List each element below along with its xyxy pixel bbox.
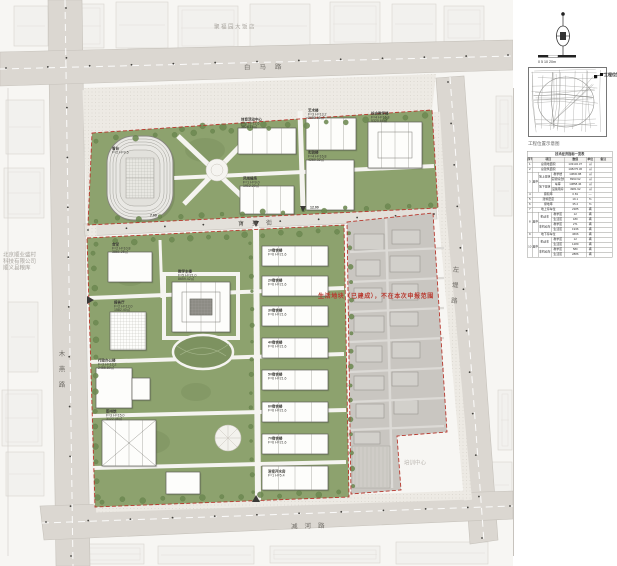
building-annotation: 行政办公楼F=3 H=13.22455.80㎡	[98, 359, 116, 370]
annotation-line: F=6 H=21.6	[268, 253, 286, 257]
context-label-hotel: 聚福园大饭店	[214, 24, 256, 31]
building-annotation: 1#宿舍楼F=6 H=21.6	[268, 249, 286, 257]
excluded-parcel-note: 生活地块（已建成），不在本次申报范围	[318, 291, 434, 300]
road-label-muyan-rd: 木燕路	[55, 350, 65, 397]
building-annotation: 图书馆F=3 H=15.03122.46㎡	[106, 410, 124, 421]
road-label-south-rd: 减河路	[291, 519, 332, 530]
building	[306, 160, 354, 210]
annotation-line: 1912.20㎡	[243, 185, 260, 189]
annotation-line: F=6 H=21.6	[268, 409, 286, 413]
existing-building	[392, 230, 420, 244]
existing-building	[354, 316, 384, 332]
building-annotation: 7#宿舍楼F=6 H=21.6	[268, 437, 286, 445]
existing-building	[392, 342, 420, 358]
table-cell: 实验综合楼	[551, 177, 564, 182]
legend-panel: 0 5 10 20m	[513, 0, 617, 566]
building-annotation: 6#宿舍楼F=6 H=21.6	[268, 405, 286, 413]
building	[96, 368, 132, 408]
building	[108, 252, 152, 282]
location-map-caption: 工程位置示意图	[528, 140, 560, 147]
north-arrow-compass-icon	[550, 10, 576, 58]
building-annotation: 食堂F=2 H=10.83861.25㎡	[112, 243, 130, 254]
table-cell: 机动车	[538, 212, 551, 222]
location-marker-icon	[594, 75, 597, 78]
building-annotation: 风雨操场F=1 H=9.01912.20㎡	[243, 177, 260, 188]
scale-bar: 0 5 10 20m	[538, 55, 578, 67]
annotation-line: 12.00	[310, 206, 319, 210]
sports-plaza-circle	[206, 159, 228, 181]
existing-building	[356, 346, 382, 362]
building-annotation: 体育活动中心F=2 H=12.63826.18㎡	[241, 118, 262, 129]
table-cell	[594, 252, 612, 257]
existing-building	[392, 372, 418, 386]
annotation-line: 4260.32㎡	[308, 159, 326, 163]
annotation-line: F=2 H=9.5	[112, 151, 129, 155]
annotation-line: F=6 H=21.6	[268, 283, 286, 287]
building-annotation: 报告厅F=2 H=12.01582.40㎡	[114, 301, 132, 312]
existing-building	[390, 256, 420, 272]
annotation-line: F=1 H=5.4	[268, 474, 286, 478]
oval-lawn	[173, 335, 233, 369]
building-annotation: 5#宿舍楼F=6 H=21.6	[268, 373, 286, 381]
annotation-line: F=6 H=21.6	[268, 377, 286, 381]
table-cell: 单位	[586, 157, 594, 162]
building-annotation: 艺术楼F=3 H=13.22683.50㎡	[308, 109, 326, 120]
technical-indicator-table: 技术经济指标一览表序号项目数值单位备注1总用地面积133132.37㎡2总建筑面…	[527, 151, 613, 258]
existing-building	[394, 400, 418, 414]
annotation-line: F=6 H=21.6	[268, 441, 286, 445]
building-annotation: 7.00	[150, 214, 157, 218]
indicator-table-wrap: 技术经济指标一览表序号项目数值单位备注1总用地面积133132.37㎡2总建筑面…	[527, 151, 613, 258]
table-cell: 机动车	[538, 237, 551, 247]
building-annotation: 综合教学楼F=4 H=16.85320.66㎡	[371, 112, 389, 123]
annotation-line: 3122.46㎡	[106, 418, 124, 422]
building-annotation: 3#宿舍楼F=6 H=21.6	[268, 309, 286, 317]
annotation-line: 8659.42㎡	[178, 278, 196, 282]
table-cell: 地上建筑	[538, 172, 551, 182]
annotation-line: 2683.50㎡	[308, 117, 326, 121]
building-annotation: 2#宿舍楼F=6 H=21.6	[268, 279, 286, 287]
building-annotation: 12.00	[310, 206, 319, 210]
site-plan-drawing: 白马路 木燕路 左堤路 育英街 减河路 聚福园大饭店 北京顺业盛村 科技有限公司…	[0, 0, 617, 566]
annotation-line: 3861.25㎡	[112, 251, 130, 255]
table-cell: 地下建筑	[538, 182, 551, 192]
annotation-line: 1582.40㎡	[114, 309, 132, 313]
annotation-line: F=6 H=21.6	[268, 313, 286, 317]
annotation-line: 7.00	[150, 214, 157, 218]
company-line: 顺义县粮库	[3, 265, 36, 272]
building	[132, 378, 150, 400]
table-cell: 辆	[586, 252, 594, 257]
road-label-baima-rd: 白马路	[244, 61, 291, 72]
annotation-line: F=6 H=21.6	[268, 345, 286, 349]
location-marker-label: 工程位置	[600, 72, 617, 78]
table-cell: 非机动车	[538, 222, 551, 232]
table-cell: 非机动车	[538, 247, 551, 257]
context-label-facility: 培训中心	[404, 460, 426, 467]
existing-parking	[352, 446, 390, 488]
existing-building	[354, 432, 380, 444]
road-label-campus-street: 育英街	[238, 217, 280, 227]
existing-building	[354, 234, 384, 250]
building-annotation: 浴室开水房F=1 H=5.4	[268, 470, 286, 478]
building-annotation: 教学主楼F=5 H=21.08659.42㎡	[178, 270, 196, 281]
table-cell: 2886	[564, 252, 586, 257]
plaza-spokes	[215, 425, 241, 451]
context-label-company: 北京顺业盛村 科技有限公司 顺义县粮库	[3, 252, 36, 272]
marker-square-icon	[600, 73, 603, 76]
location-map	[528, 67, 607, 137]
table-cell: 序号	[527, 157, 532, 162]
table-cell: 设备用房	[551, 187, 564, 192]
building-annotation: 4#宿舍楼F=6 H=21.6	[268, 341, 286, 349]
panel-divider	[513, 88, 514, 556]
building-annotation: 看台F=2 H=9.5	[112, 147, 129, 155]
building	[166, 472, 200, 494]
scale-bar-label: 0 5 10 20m	[538, 60, 556, 64]
existing-building	[390, 312, 418, 326]
annotation-line: 2455.80㎡	[98, 367, 116, 371]
existing-building	[354, 376, 384, 390]
annotation-line: 5320.66㎡	[371, 120, 389, 124]
building-annotation: 实验楼F=4 H=16.84260.32㎡	[308, 151, 326, 162]
existing-building	[356, 260, 380, 276]
table-cell: 生活区	[551, 252, 564, 257]
existing-building	[356, 404, 384, 418]
annotation-line: 3826.18㎡	[241, 126, 262, 130]
